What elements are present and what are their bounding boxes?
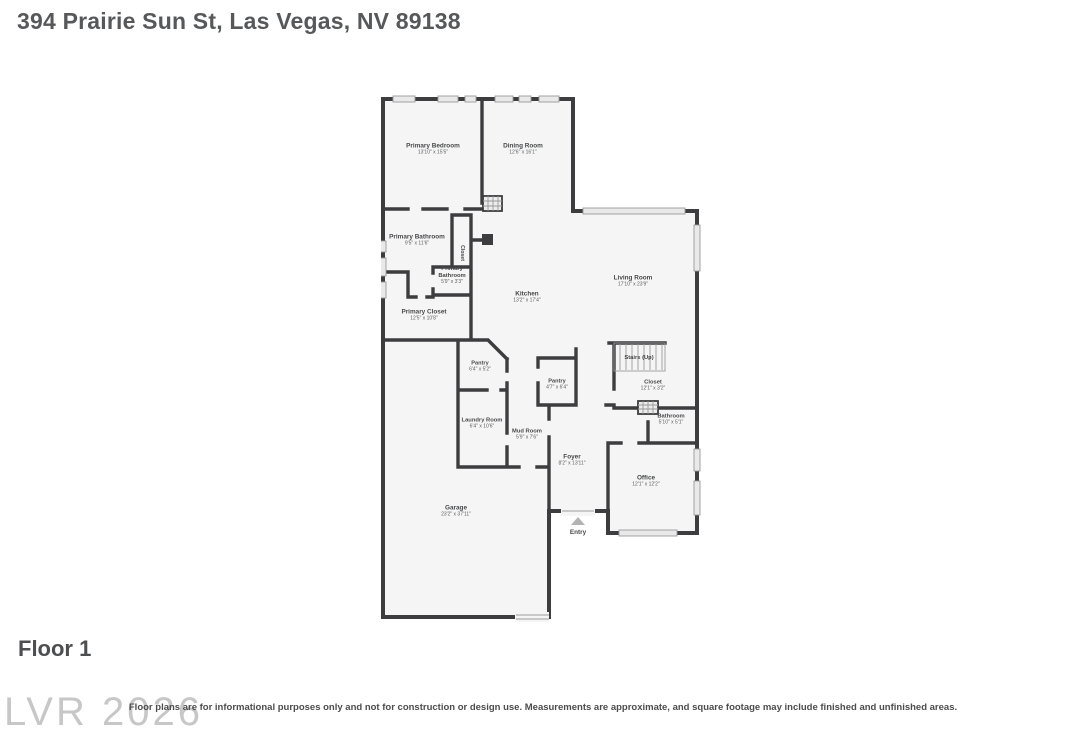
kitchen-appliance bbox=[482, 234, 493, 245]
fireplace-hatch bbox=[483, 196, 502, 211]
room-label: Pantry4'7" x 6'4" bbox=[546, 379, 568, 391]
room-label: Entry bbox=[570, 529, 587, 536]
room-label: PrimaryBathroom5'9" x 3'3" bbox=[438, 266, 465, 285]
room-label: Closet12'1" x 3'2" bbox=[641, 380, 666, 392]
garage-door-gap bbox=[515, 612, 549, 622]
page-title: 394 Prairie Sun St, Las Vegas, NV 89138 bbox=[17, 8, 461, 35]
closet-hatch bbox=[638, 401, 658, 414]
entry-arrow-icon bbox=[571, 517, 585, 525]
room-label: Bathroom5'10" x 5'1" bbox=[657, 414, 684, 426]
room-label: Pantry6'4" x 5'2" bbox=[469, 361, 491, 373]
room-label: Closet bbox=[459, 245, 465, 261]
disclaimer-text: Floor plans are for informational purpos… bbox=[0, 702, 1086, 713]
floor-label: Floor 1 bbox=[18, 636, 91, 662]
room-label: Stairs (Up) bbox=[624, 355, 653, 361]
room-label: Living Room17'10" x 23'9" bbox=[614, 275, 653, 288]
room-label: Garage23'2" x 37'11" bbox=[441, 505, 471, 518]
room-label: Mud Room5'9" x 7'6" bbox=[512, 429, 542, 441]
floor-plan: Primary Bedroom13'10" x 15'5"Dining Room… bbox=[381, 93, 701, 625]
room-label: Kitchen13'2" x 17'4" bbox=[513, 291, 541, 304]
